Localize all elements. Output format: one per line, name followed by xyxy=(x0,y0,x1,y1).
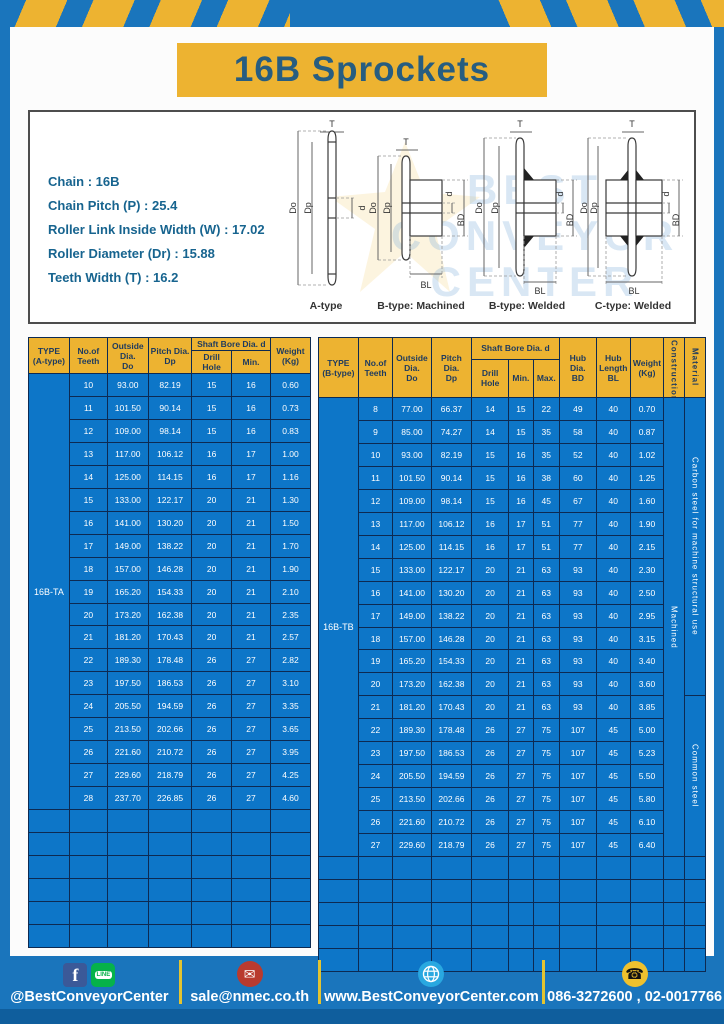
spec-line-width: Roller Link Inside Width (W) : 17.02 xyxy=(48,218,284,242)
empty-row xyxy=(318,880,705,903)
empty-cell xyxy=(192,901,231,924)
table-cell: 26 xyxy=(192,764,231,787)
table-cell: 77 xyxy=(559,535,596,558)
table-cell: 16 xyxy=(509,443,533,466)
table-cell: 26 xyxy=(69,741,107,764)
empty-cell xyxy=(685,857,706,880)
table-cell: 28 xyxy=(69,787,107,810)
col-header-material: Material xyxy=(685,338,706,398)
table-cell: 157.00 xyxy=(393,627,432,650)
empty-cell xyxy=(107,833,148,856)
table-cell: 122.17 xyxy=(431,558,471,581)
table-cell: 17 xyxy=(509,512,533,535)
table-cell: 38 xyxy=(533,466,559,489)
empty-cell xyxy=(192,810,231,833)
table-cell: 21 xyxy=(231,626,270,649)
corner-stripes-left xyxy=(0,0,290,27)
table-cell: 23 xyxy=(69,672,107,695)
empty-cell xyxy=(318,880,358,903)
col-header-max: Max. xyxy=(533,359,559,397)
table-cell: 1.00 xyxy=(271,442,310,465)
table-cell: 3.60 xyxy=(630,673,663,696)
spec-line-chain: Chain : 16B xyxy=(48,170,284,194)
empty-cell xyxy=(359,902,393,925)
table-cell: 16 xyxy=(509,466,533,489)
table-cell: 21 xyxy=(509,558,533,581)
table-cell: 1.60 xyxy=(630,489,663,512)
table-cell: 218.79 xyxy=(148,764,192,787)
table-cell: 21 xyxy=(231,580,270,603)
table-cell: 45 xyxy=(596,834,630,857)
table-cell: 20 xyxy=(472,650,509,673)
empty-cell xyxy=(29,810,70,833)
table-cell: 11 xyxy=(359,466,393,489)
empty-row xyxy=(29,810,311,833)
empty-cell xyxy=(509,902,533,925)
empty-cell xyxy=(533,857,559,880)
table-cell: 27 xyxy=(231,741,270,764)
table-cell: 52 xyxy=(559,443,596,466)
table-cell: 141.00 xyxy=(393,581,432,604)
table-cell: 186.53 xyxy=(148,672,192,695)
empty-cell xyxy=(630,902,663,925)
table-cell: 16 xyxy=(509,489,533,512)
table-cell: 40 xyxy=(596,604,630,627)
footer-phone[interactable]: ☎ 086-3272600 , 02-0017766 xyxy=(545,956,724,1008)
table-cell: 107 xyxy=(559,834,596,857)
table-cell: 16 xyxy=(472,535,509,558)
table-cell: 26 xyxy=(472,719,509,742)
table-cell: 3.95 xyxy=(271,741,310,764)
table-cell: 146.28 xyxy=(431,627,471,650)
table-cell: 157.00 xyxy=(107,557,148,580)
table-cell: 21 xyxy=(509,650,533,673)
empty-row xyxy=(318,902,705,925)
table-cell: 5.23 xyxy=(630,742,663,765)
table-cell: 45 xyxy=(596,719,630,742)
table-row: 18157.00146.2820216393403.15 xyxy=(318,627,705,650)
table-cell: 20 xyxy=(472,673,509,696)
table-cell: 186.53 xyxy=(431,742,471,765)
table-cell: 237.70 xyxy=(107,787,148,810)
table-cell: 21 xyxy=(359,696,393,719)
table-cell: 20 xyxy=(192,557,231,580)
table-cell: 106.12 xyxy=(148,442,192,465)
table-cell: 3.85 xyxy=(630,696,663,719)
table-cell: 15 xyxy=(509,420,533,443)
empty-cell xyxy=(509,925,533,948)
col-header-drill-hole: Drill Hole xyxy=(192,351,231,374)
table-cell: 51 xyxy=(533,535,559,558)
empty-cell xyxy=(318,857,358,880)
dim-T-label: T xyxy=(403,137,409,147)
table-cell: 63 xyxy=(533,650,559,673)
table-cell: 63 xyxy=(533,604,559,627)
empty-cell xyxy=(431,857,471,880)
empty-cell xyxy=(192,878,231,901)
table-cell: 25 xyxy=(359,788,393,811)
social-handle[interactable]: @BestConveyorCenter xyxy=(10,989,168,1005)
table-cell: 6.10 xyxy=(630,811,663,834)
empty-cell xyxy=(630,925,663,948)
table-cell: 45 xyxy=(596,788,630,811)
table-row: 16B-TB877.0066.3714152249400.70MachinedC… xyxy=(318,398,705,421)
table-row: 27229.60218.7926274.25 xyxy=(29,764,311,787)
table-cell: 189.30 xyxy=(107,649,148,672)
empty-cell xyxy=(472,857,509,880)
footer-email[interactable]: ✉ sale@nmec.co.th xyxy=(182,956,318,1008)
table-row: 16141.00130.2020216393402.50 xyxy=(318,581,705,604)
table-cell: 27 xyxy=(231,787,270,810)
table-cell: 173.20 xyxy=(393,673,432,696)
table-cell: 26 xyxy=(192,787,231,810)
table-b-body: 16B-TB877.0066.3714152249400.70MachinedC… xyxy=(318,398,705,972)
table-row: 24205.50194.5926273.35 xyxy=(29,695,311,718)
table-cell: 82.19 xyxy=(431,443,471,466)
col-header-min: Min. xyxy=(231,351,270,374)
col-header-type: TYPE (A-type) xyxy=(29,338,70,374)
spec-line-roller: Roller Diameter (Dr) : 15.88 xyxy=(48,242,284,266)
table-cell: 40 xyxy=(596,420,630,443)
table-cell: 63 xyxy=(533,696,559,719)
table-cell: 2.82 xyxy=(271,649,310,672)
col-header-hub-dia: Hub Dia. BD xyxy=(559,338,596,398)
table-cell: 15 xyxy=(192,419,231,442)
table-cell: 21 xyxy=(509,581,533,604)
table-cell: 2.35 xyxy=(271,603,310,626)
empty-cell xyxy=(231,856,270,879)
facebook-icon[interactable]: f xyxy=(63,963,87,987)
empty-cell xyxy=(431,902,471,925)
dim-Do-label: Do xyxy=(580,202,589,214)
table-cell: 21 xyxy=(231,511,270,534)
table-cell: 20 xyxy=(192,534,231,557)
spec-tables: TYPE (A-type) No.of Teeth Outside Dia. D… xyxy=(28,337,706,948)
table-cell: 26 xyxy=(359,811,393,834)
line-app-icon[interactable]: LINE xyxy=(91,963,115,987)
diagram-c-welded: T Do xyxy=(580,118,686,316)
table-cell: 1.30 xyxy=(271,488,310,511)
globe-icon[interactable] xyxy=(418,961,444,987)
table-cell: 27 xyxy=(509,788,533,811)
empty-cell xyxy=(664,902,685,925)
table-cell: 11 xyxy=(69,396,107,419)
empty-cell xyxy=(596,902,630,925)
table-b-header: TYPE (B-type) No.of Teeth Outside Dia. D… xyxy=(318,338,705,398)
footer-contact-bar: f LINE @BestConveyorCenter ✉ sale@nmec.c… xyxy=(0,956,724,1008)
empty-cell xyxy=(359,880,393,903)
empty-cell xyxy=(148,856,192,879)
table-cell: 109.00 xyxy=(107,419,148,442)
empty-cell xyxy=(69,901,107,924)
table-row: 14125.00114.1516175177402.15 xyxy=(318,535,705,558)
table-cell: 149.00 xyxy=(393,604,432,627)
table-cell: 1.16 xyxy=(271,465,310,488)
table-cell: 141.00 xyxy=(107,511,148,534)
table-row: 11101.5090.1415163860401.25 xyxy=(318,466,705,489)
table-cell: 21 xyxy=(509,696,533,719)
table-cell: 165.20 xyxy=(393,650,432,673)
table-cell: 146.28 xyxy=(148,557,192,580)
empty-cell xyxy=(148,833,192,856)
table-cell: 181.20 xyxy=(393,696,432,719)
col-header-pitch-dia: Pitch Dia. Dp xyxy=(148,338,192,374)
table-cell: 0.73 xyxy=(271,396,310,419)
table-cell: 9 xyxy=(359,420,393,443)
bottom-accent-strip xyxy=(0,1009,724,1024)
empty-cell xyxy=(393,902,432,925)
table-cell: 18 xyxy=(359,627,393,650)
table-cell: 20 xyxy=(472,581,509,604)
empty-cell xyxy=(393,925,432,948)
table-cell: 17 xyxy=(359,604,393,627)
table-cell: 2.95 xyxy=(630,604,663,627)
table-cell: 3.65 xyxy=(271,718,310,741)
empty-cell xyxy=(231,833,270,856)
phone-icon[interactable]: ☎ xyxy=(622,961,648,987)
empty-cell xyxy=(148,810,192,833)
table-cell: 107 xyxy=(559,765,596,788)
table-cell: 109.00 xyxy=(393,489,432,512)
dim-d-label: d xyxy=(555,191,565,196)
table-cell: 181.20 xyxy=(107,626,148,649)
table-cell: 20 xyxy=(472,558,509,581)
dim-Dp-label: Dp xyxy=(589,202,599,214)
email-icon[interactable]: ✉ xyxy=(237,961,263,987)
empty-cell xyxy=(318,925,358,948)
table-cell: 20 xyxy=(359,673,393,696)
table-row: 26221.60210.72262775107456.10 xyxy=(318,811,705,834)
diagram-b-welded: T Do Dp xyxy=(474,118,580,316)
dim-BD-label: BD xyxy=(565,213,575,226)
footer-website[interactable]: www.BestConveyorCenter.com xyxy=(321,956,543,1008)
catalog-page: 16B Sprockets BEST CONVEYOR CENTER Chain… xyxy=(0,0,724,1024)
empty-cell xyxy=(107,878,148,901)
table-cell: 14 xyxy=(69,465,107,488)
table-cell: 21 xyxy=(231,557,270,580)
table-cell: 16 xyxy=(231,419,270,442)
table-cell: 1.02 xyxy=(630,443,663,466)
table-cell: 10 xyxy=(69,374,107,397)
empty-cell xyxy=(107,901,148,924)
table-cell: 45 xyxy=(533,489,559,512)
col-header-weight: Weight (Kg) xyxy=(630,338,663,398)
table-cell: 26 xyxy=(192,649,231,672)
table-cell: 16 xyxy=(472,512,509,535)
dim-BL-label: BL xyxy=(420,280,431,290)
table-cell: 27 xyxy=(509,811,533,834)
empty-row xyxy=(29,901,311,924)
table-cell: 107 xyxy=(559,811,596,834)
empty-cell xyxy=(533,902,559,925)
dim-BL-label: BL xyxy=(628,286,639,296)
table-cell: 63 xyxy=(533,558,559,581)
empty-row xyxy=(318,925,705,948)
table-cell: 229.60 xyxy=(393,834,432,857)
table-cell: 173.20 xyxy=(107,603,148,626)
empty-cell xyxy=(148,878,192,901)
table-cell: 21 xyxy=(231,488,270,511)
table-cell: 1.25 xyxy=(630,466,663,489)
table-cell: 26 xyxy=(472,788,509,811)
table-cell: 40 xyxy=(596,650,630,673)
table-cell: 2.15 xyxy=(630,535,663,558)
table-row: 23197.50186.53262775107455.23 xyxy=(318,742,705,765)
empty-cell xyxy=(359,857,393,880)
table-cell: 4.60 xyxy=(271,787,310,810)
empty-cell xyxy=(192,924,231,947)
diagram-a-type: T Do Dp xyxy=(284,118,368,316)
table-cell: 22 xyxy=(69,649,107,672)
material-label: Common steel xyxy=(685,696,706,857)
table-row: 25213.50202.6626273.65 xyxy=(29,718,311,741)
table-cell: 165.20 xyxy=(107,580,148,603)
table-cell: 154.33 xyxy=(148,580,192,603)
table-cell: 40 xyxy=(596,673,630,696)
table-cell: 4.25 xyxy=(271,764,310,787)
col-header-pitch-dia: Pitch Dia. Dp xyxy=(431,338,471,398)
table-cell: 2.10 xyxy=(271,580,310,603)
table-cell: 74.27 xyxy=(431,420,471,443)
empty-cell xyxy=(271,901,310,924)
table-cell: 26 xyxy=(192,718,231,741)
table-cell: 27 xyxy=(231,695,270,718)
table-row: 15133.00122.1720211.30 xyxy=(29,488,311,511)
diagram-caption: B-type: Welded xyxy=(489,300,565,316)
table-cell: 51 xyxy=(533,512,559,535)
empty-cell xyxy=(69,810,107,833)
table-cell: 40 xyxy=(596,398,630,421)
table-cell: 221.60 xyxy=(107,741,148,764)
table-cell: 117.00 xyxy=(107,442,148,465)
table-cell: 21 xyxy=(509,627,533,650)
empty-cell xyxy=(192,856,231,879)
table-cell: 3.15 xyxy=(630,627,663,650)
table-cell: 17 xyxy=(231,442,270,465)
table-cell: 15 xyxy=(192,396,231,419)
table-cell: 75 xyxy=(533,788,559,811)
table-cell: 101.50 xyxy=(393,466,432,489)
table-row: 28237.70226.8526274.60 xyxy=(29,787,311,810)
table-row: 19165.20154.3320216393403.40 xyxy=(318,650,705,673)
table-cell: 17 xyxy=(509,535,533,558)
table-cell: 114.15 xyxy=(431,535,471,558)
table-cell: 14 xyxy=(359,535,393,558)
col-header-construction: Construction xyxy=(664,338,685,398)
diagram-b-machined: T Do Dp xyxy=(368,118,474,316)
empty-cell xyxy=(596,925,630,948)
empty-cell xyxy=(29,901,70,924)
table-row: 25213.50202.66262775107455.80 xyxy=(318,788,705,811)
table-cell: 20 xyxy=(192,603,231,626)
table-cell: 106.12 xyxy=(431,512,471,535)
empty-cell xyxy=(559,880,596,903)
dim-d-label: d xyxy=(357,205,367,210)
table-cell: 5.00 xyxy=(630,719,663,742)
table-cell: 197.50 xyxy=(393,742,432,765)
table-cell: 40 xyxy=(596,489,630,512)
table-cell: 21 xyxy=(509,604,533,627)
table-cell: 15 xyxy=(472,443,509,466)
table-cell: 21 xyxy=(231,603,270,626)
table-cell: 27 xyxy=(509,742,533,765)
table-cell: 5.80 xyxy=(630,788,663,811)
table-cell: 20 xyxy=(472,696,509,719)
table-cell: 90.14 xyxy=(148,396,192,419)
table-cell: 93 xyxy=(559,604,596,627)
col-header-drill-hole: Drill Hole xyxy=(472,359,509,397)
table-cell: 15 xyxy=(472,466,509,489)
table-cell: 21 xyxy=(231,534,270,557)
table-cell: 75 xyxy=(533,811,559,834)
table-cell: 122.17 xyxy=(148,488,192,511)
empty-cell xyxy=(472,880,509,903)
table-cell: 20 xyxy=(472,604,509,627)
table-cell: 1.90 xyxy=(271,557,310,580)
table-cell: 202.66 xyxy=(431,788,471,811)
table-cell: 20 xyxy=(192,580,231,603)
table-cell: 0.87 xyxy=(630,420,663,443)
type-label: 16B-TB xyxy=(318,398,358,857)
table-cell: 12 xyxy=(359,489,393,512)
table-cell: 27 xyxy=(231,649,270,672)
col-header-weight: Weight (Kg) xyxy=(271,338,310,374)
diagram-panel: BEST CONVEYOR CENTER Chain : 16B Chain P… xyxy=(28,110,696,324)
empty-cell xyxy=(509,857,533,880)
table-cell: 26 xyxy=(472,811,509,834)
table-cell: 27 xyxy=(509,719,533,742)
table-row: 12109.0098.1415160.83 xyxy=(29,419,311,442)
empty-cell xyxy=(107,810,148,833)
empty-cell xyxy=(107,924,148,947)
table-cell: 58 xyxy=(559,420,596,443)
table-cell: 210.72 xyxy=(148,741,192,764)
table-cell: 226.85 xyxy=(148,787,192,810)
table-cell: 40 xyxy=(596,696,630,719)
dim-BD-label: BD xyxy=(456,213,466,226)
table-cell: 93 xyxy=(559,650,596,673)
table-cell: 107 xyxy=(559,788,596,811)
material-label: Carbon steel for machine structural use xyxy=(685,398,706,696)
empty-cell xyxy=(664,925,685,948)
table-cell: 35 xyxy=(533,420,559,443)
empty-cell xyxy=(393,880,432,903)
table-cell: 66.37 xyxy=(431,398,471,421)
email-address[interactable]: sale@nmec.co.th xyxy=(190,989,309,1005)
table-cell: 14 xyxy=(472,398,509,421)
table-cell: 75 xyxy=(533,742,559,765)
empty-row xyxy=(29,878,311,901)
table-cell: 26 xyxy=(472,765,509,788)
table-row: 21181.20170.4320216393403.85Common steel xyxy=(318,696,705,719)
table-cell: 154.33 xyxy=(431,650,471,673)
table-cell: 114.15 xyxy=(148,465,192,488)
table-cell: 27 xyxy=(231,764,270,787)
table-row: 13117.00106.1216175177401.90 xyxy=(318,512,705,535)
table-cell: 130.20 xyxy=(431,581,471,604)
table-row: 22189.30178.4826272.82 xyxy=(29,649,311,672)
website-url[interactable]: www.BestConveyorCenter.com xyxy=(324,989,539,1005)
table-cell: 21 xyxy=(509,673,533,696)
empty-cell xyxy=(107,856,148,879)
table-cell: 63 xyxy=(533,581,559,604)
table-cell: 27 xyxy=(509,834,533,857)
phone-numbers[interactable]: 086-3272600 , 02-0017766 xyxy=(547,989,722,1005)
table-cell: 0.60 xyxy=(271,374,310,397)
table-cell: 18 xyxy=(69,557,107,580)
footer-social[interactable]: f LINE @BestConveyorCenter xyxy=(0,956,179,1008)
table-cell: 16 xyxy=(231,396,270,419)
